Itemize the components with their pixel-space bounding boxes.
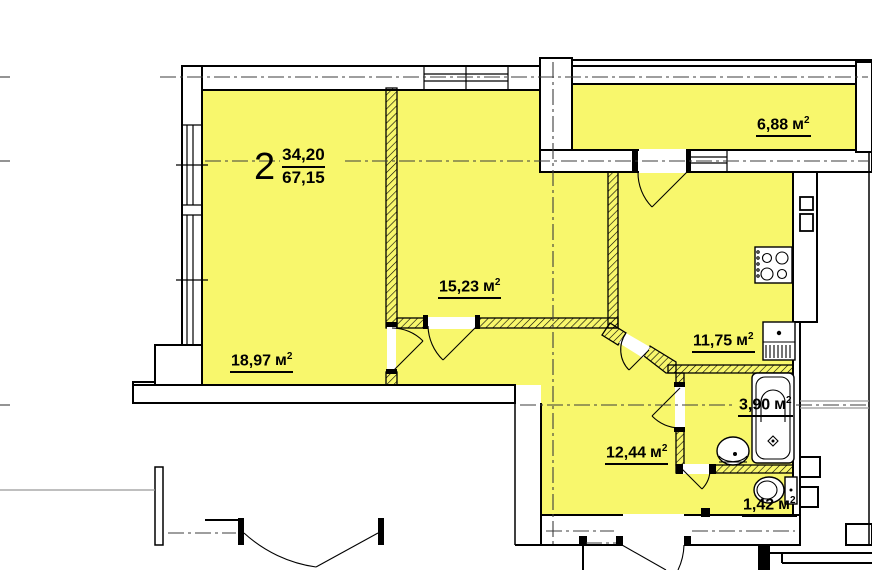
- area-sup: 2: [662, 443, 668, 454]
- area-sup: 2: [748, 331, 754, 342]
- area-unit: м: [650, 444, 662, 461]
- living-room-area: [202, 88, 397, 385]
- balcony-area: [572, 82, 858, 150]
- room-area-label-wc: 1,42м2: [742, 496, 797, 517]
- area-value: 11,75: [693, 332, 732, 349]
- room-area-label-kitchen: 11,75м2: [692, 332, 755, 353]
- area-unit: м: [736, 332, 748, 349]
- room-area-label-bedroom: 15,23м2: [438, 278, 501, 299]
- apartment-label: 2 34,20 67,15: [254, 146, 325, 187]
- area-sup: 2: [804, 115, 810, 126]
- area-sup: 2: [495, 277, 501, 288]
- area-value: 6,88: [757, 116, 788, 133]
- area-value: 1,42: [743, 496, 774, 513]
- room-area-label-bathroom: 3,90м2: [738, 396, 793, 417]
- area-unit: м: [483, 278, 495, 295]
- area-unit: м: [778, 496, 790, 513]
- kitchen-sink-icon: [763, 322, 795, 360]
- bathtub-icon: [752, 373, 794, 463]
- apartment-number: 2: [254, 148, 275, 186]
- floor-plan-drawing: [0, 0, 872, 570]
- area-unit: м: [774, 396, 786, 413]
- area-unit: м: [275, 352, 287, 369]
- apartment-living-area: 34,20: [282, 146, 325, 168]
- area-value: 3,90: [739, 396, 770, 413]
- apartment-total-area: 67,15: [282, 168, 325, 188]
- floor-plan: 2 34,20 67,15 18,97м2 15,23м2 6,88м2 11,…: [0, 0, 872, 570]
- area-sup: 2: [287, 351, 293, 362]
- washbasin-icon: [717, 437, 749, 465]
- area-unit: м: [792, 116, 804, 133]
- apartment-area-fraction: 34,20 67,15: [282, 146, 325, 187]
- area-sup: 2: [790, 495, 796, 506]
- stove-icon: [755, 247, 792, 283]
- room-area-label-balcony: 6,88м2: [756, 116, 811, 137]
- area-value: 12,44: [606, 444, 646, 461]
- area-value: 15,23: [439, 278, 479, 295]
- area-value: 18,97: [231, 352, 271, 369]
- room-area-label-living: 18,97м2: [230, 352, 293, 373]
- area-sup: 2: [786, 395, 792, 406]
- room-area-label-hall: 12,44м2: [605, 444, 668, 465]
